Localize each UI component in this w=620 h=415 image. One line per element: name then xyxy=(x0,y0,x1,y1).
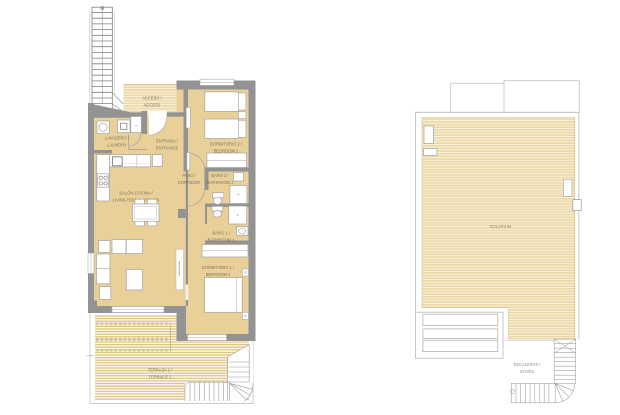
svg-text:DORMITORIO 2 /: DORMITORIO 2 / xyxy=(210,141,243,146)
svg-text:SALÓN-COCINA /: SALÓN-COCINA / xyxy=(119,191,153,196)
svg-text:ESCALERAS /: ESCALERAS / xyxy=(514,362,542,367)
svg-text:ACCESO /: ACCESO / xyxy=(142,95,162,100)
svg-text:BATHROOM 2: BATHROOM 2 xyxy=(207,180,234,185)
svg-text:TERRACE 1: TERRACE 1 xyxy=(149,374,173,379)
svg-text:STAIRS: STAIRS xyxy=(520,369,535,374)
svg-text:SOLARIUM: SOLARIUM xyxy=(490,224,512,229)
svg-text:ENTRADA /: ENTRADA / xyxy=(156,139,178,144)
svg-text:ENTRANCE: ENTRANCE xyxy=(156,146,179,151)
svg-text:LAVADERO /: LAVADERO / xyxy=(105,136,130,141)
svg-text:BAÑO 1 /: BAÑO 1 / xyxy=(212,231,230,236)
svg-text:BEDROOM 2: BEDROOM 2 xyxy=(214,148,239,153)
svg-text:BAÑO 2 /: BAÑO 2 / xyxy=(211,173,229,178)
svg-text:BATHROOM 1: BATHROOM 1 xyxy=(208,237,235,242)
svg-text:LAUNDRY: LAUNDRY xyxy=(107,143,127,148)
svg-text:TERRAZA 1 /: TERRAZA 1 / xyxy=(148,367,173,372)
svg-text:PASO /: PASO / xyxy=(182,173,196,178)
svg-text:ACCESS: ACCESS xyxy=(144,102,161,107)
svg-text:BEDROOM 1: BEDROOM 1 xyxy=(206,272,231,277)
svg-text:DORMITORIO 1 /: DORMITORIO 1 / xyxy=(202,265,235,270)
svg-text:CORRIDOR: CORRIDOR xyxy=(178,180,200,185)
